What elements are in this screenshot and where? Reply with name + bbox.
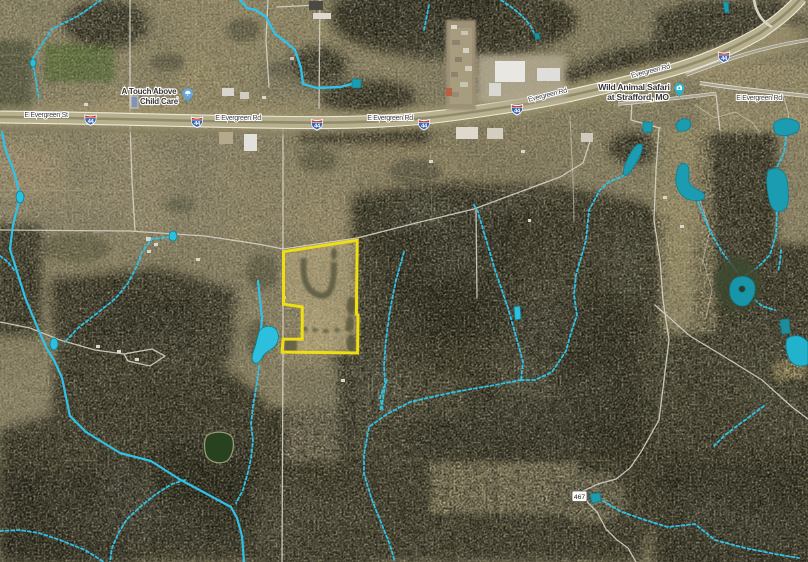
svg-text:E Evergreen Rd: E Evergreen Rd: [736, 95, 782, 102]
svg-text:467: 467: [574, 494, 586, 501]
svg-text:A Touch Above: A Touch Above: [122, 87, 178, 96]
svg-text:Wild Animal Safari: Wild Animal Safari: [598, 82, 669, 92]
svg-text:Child Care: Child Care: [140, 97, 179, 106]
svg-text:at Strafford, MO: at Strafford, MO: [607, 92, 669, 102]
svg-text:E Evergreen Rd: E Evergreen Rd: [215, 115, 261, 122]
svg-text:E Evergreen St: E Evergreen St: [24, 112, 68, 119]
svg-text:E Evergreen Rd: E Evergreen Rd: [367, 115, 413, 122]
